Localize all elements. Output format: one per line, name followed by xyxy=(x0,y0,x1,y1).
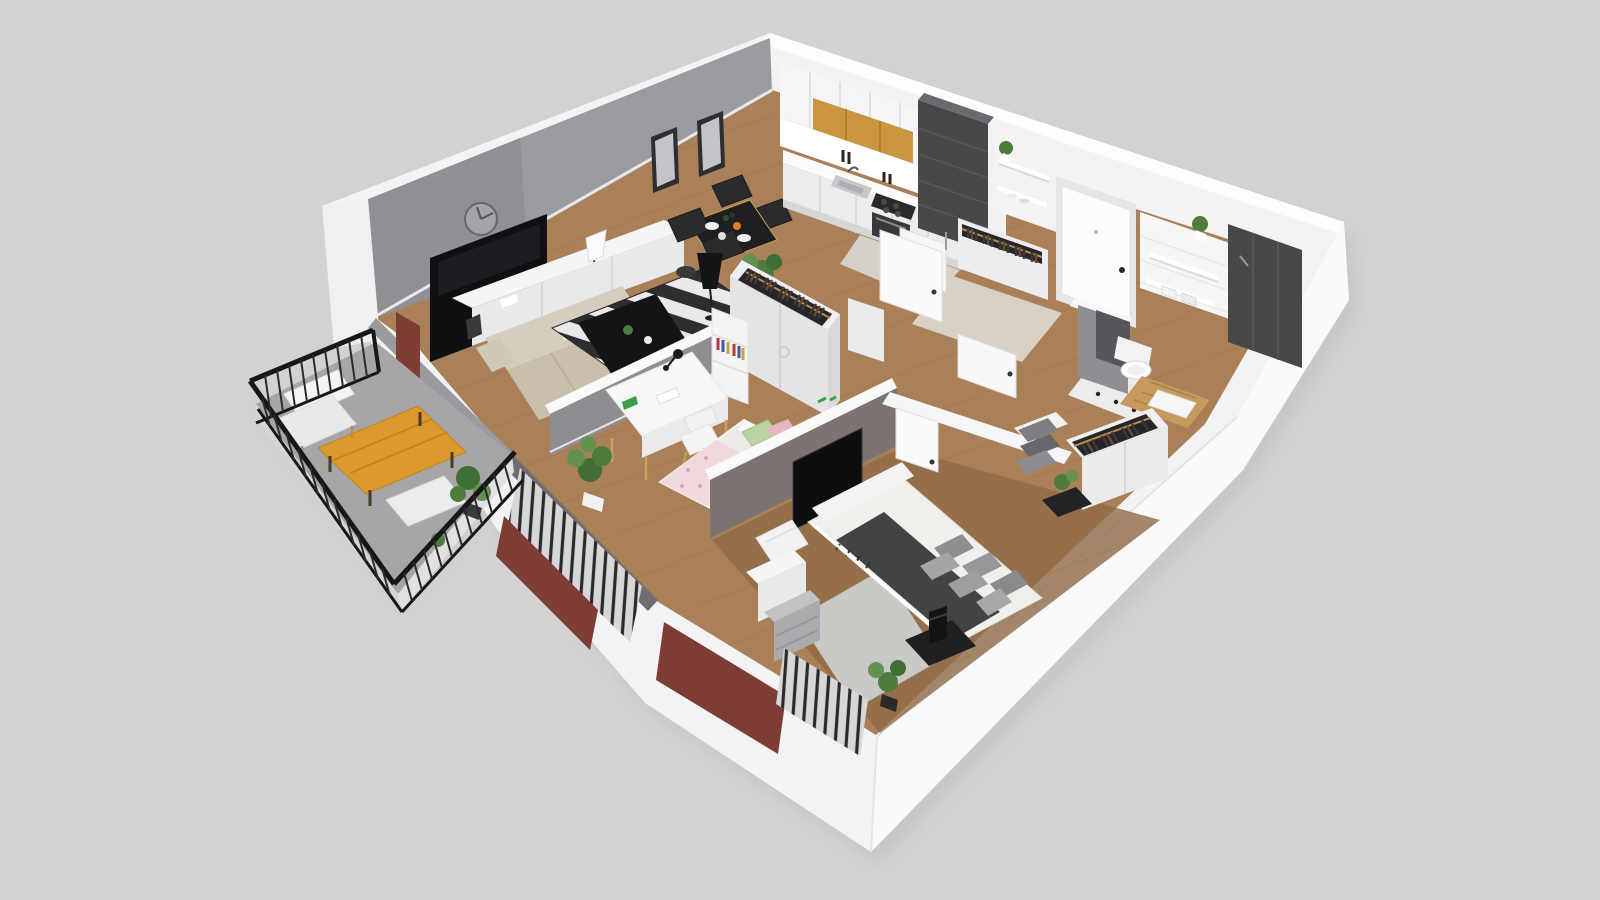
palm-leaves xyxy=(766,254,782,270)
bottle xyxy=(723,215,729,221)
door-peephole xyxy=(1094,230,1098,234)
closet-side xyxy=(828,314,840,416)
shelf-plant xyxy=(1192,216,1208,232)
shelf-bowl xyxy=(1007,194,1017,199)
bowl xyxy=(718,232,726,240)
render-canvas: 3D cutaway floor plan render of a two-be… xyxy=(0,0,1600,900)
leaves xyxy=(592,446,612,466)
frame-art xyxy=(655,133,675,187)
leaf-handle xyxy=(930,460,935,465)
floorplan-3d-render xyxy=(0,0,1600,900)
door-handle xyxy=(1119,267,1125,273)
plate xyxy=(705,222,719,230)
leaves xyxy=(1066,470,1078,482)
black-table-lamp xyxy=(929,606,947,644)
shelf-plant xyxy=(999,141,1013,155)
leaves xyxy=(868,662,884,678)
desk-lamp-shade xyxy=(673,349,683,359)
leaf-handle xyxy=(932,290,937,295)
leaves xyxy=(450,486,466,502)
bottle xyxy=(729,212,735,218)
pumpkin xyxy=(733,222,741,230)
leaves xyxy=(580,436,596,452)
plate xyxy=(737,234,751,242)
basket xyxy=(676,266,696,278)
table-bowl xyxy=(644,336,652,344)
leaves xyxy=(890,660,906,676)
desk-lamp-base xyxy=(663,365,669,371)
frame-art xyxy=(701,117,721,171)
shelf-bowl xyxy=(1019,199,1029,204)
toilet-seat xyxy=(1127,365,1145,375)
leaf-handle xyxy=(1008,372,1013,377)
table-plant xyxy=(623,325,633,335)
leaves xyxy=(567,449,585,467)
